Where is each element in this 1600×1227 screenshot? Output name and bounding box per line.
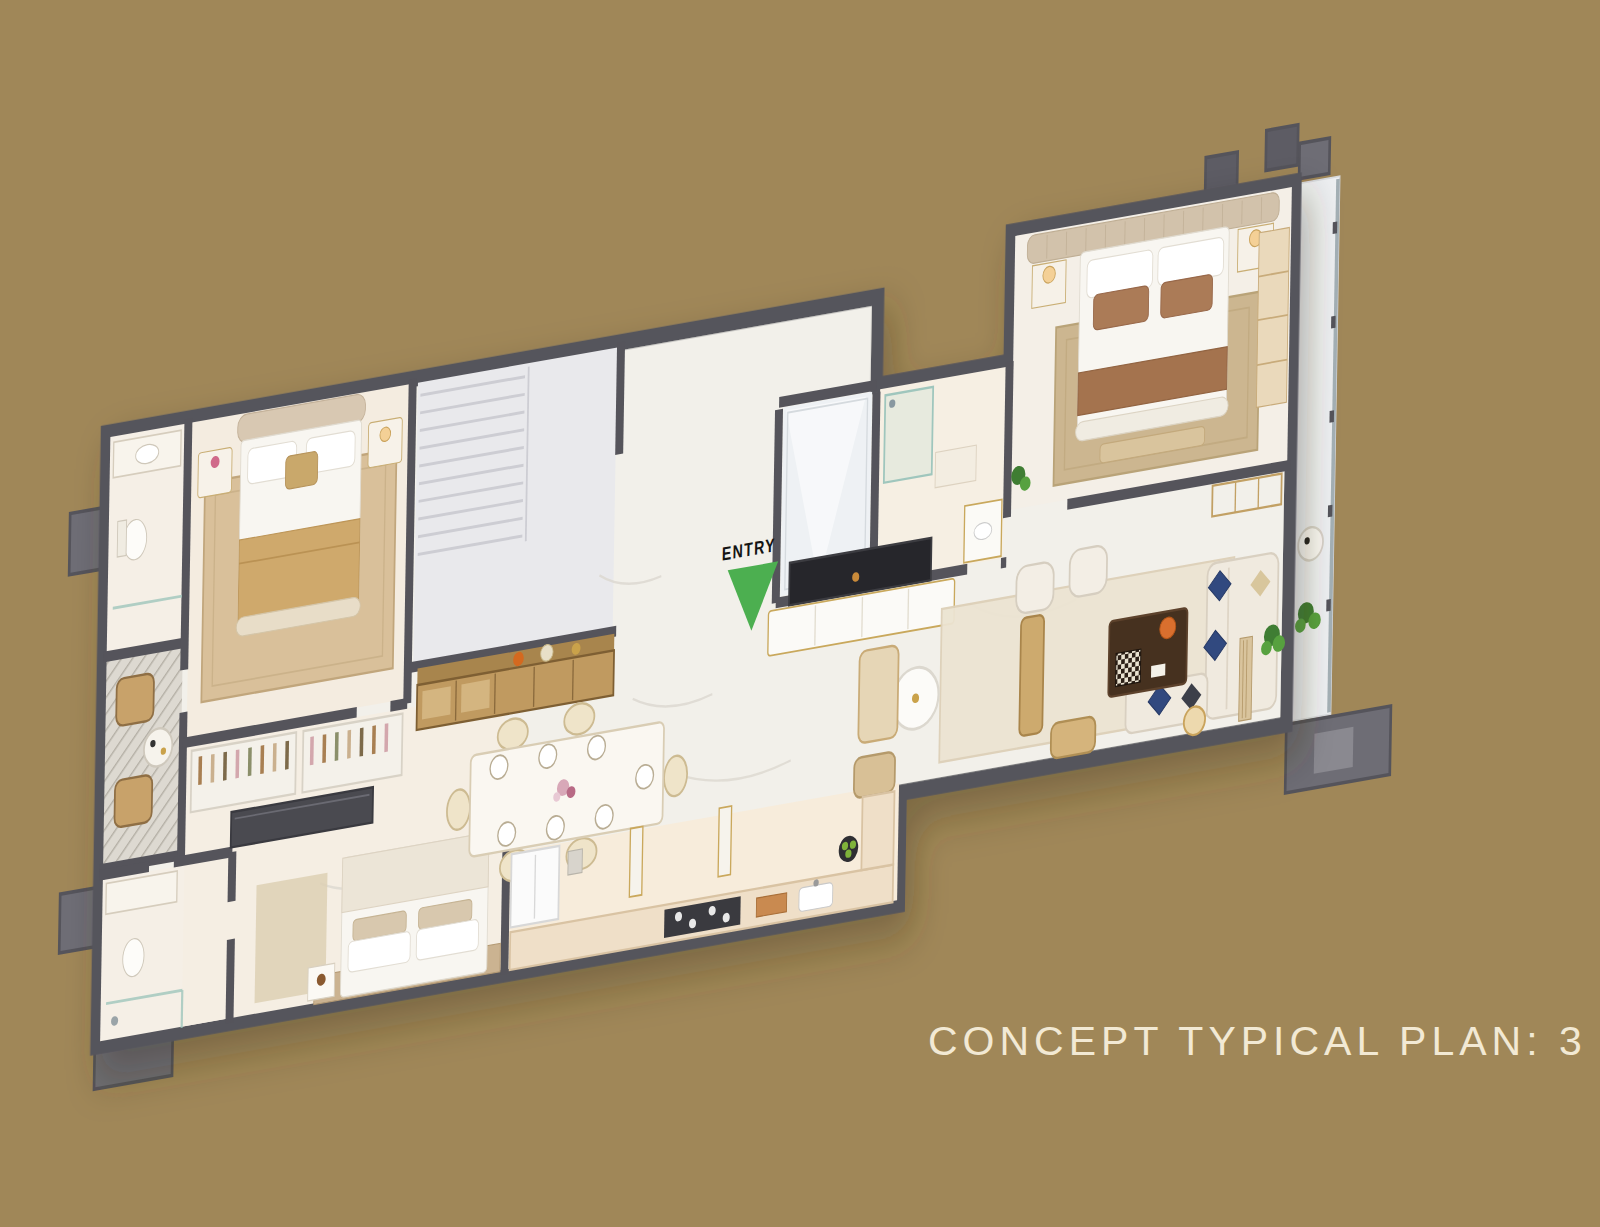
chessboard [1115, 649, 1140, 686]
bath-bench [935, 445, 976, 488]
toilet-tank [117, 520, 126, 557]
shelf-divider [1258, 478, 1259, 509]
accent-chair [1069, 544, 1107, 598]
balcony-ac-ledge [1299, 138, 1330, 179]
gold-armchair [1051, 716, 1096, 759]
nightstand [198, 447, 232, 498]
counter-return [861, 791, 894, 870]
shelf-divider [1235, 482, 1236, 513]
gold-bench [1019, 614, 1044, 736]
partition-pillar [629, 826, 643, 897]
coffee-machine [568, 849, 583, 875]
accent-chair [1016, 561, 1054, 615]
plan-caption: CONCEPT TYPICAL PLAN: 3 BHK [928, 1018, 1568, 1065]
shower-glass-return [182, 990, 183, 1028]
wicker-chair-1 [116, 673, 154, 727]
nightstand [368, 417, 402, 468]
partition-pillar [718, 806, 732, 877]
accent-pillow [285, 451, 317, 490]
chimney-top-2 [1266, 125, 1299, 171]
glass-door [422, 686, 451, 719]
settee [858, 645, 899, 744]
glass-door [461, 679, 490, 712]
wicker-chair-2 [114, 774, 152, 828]
